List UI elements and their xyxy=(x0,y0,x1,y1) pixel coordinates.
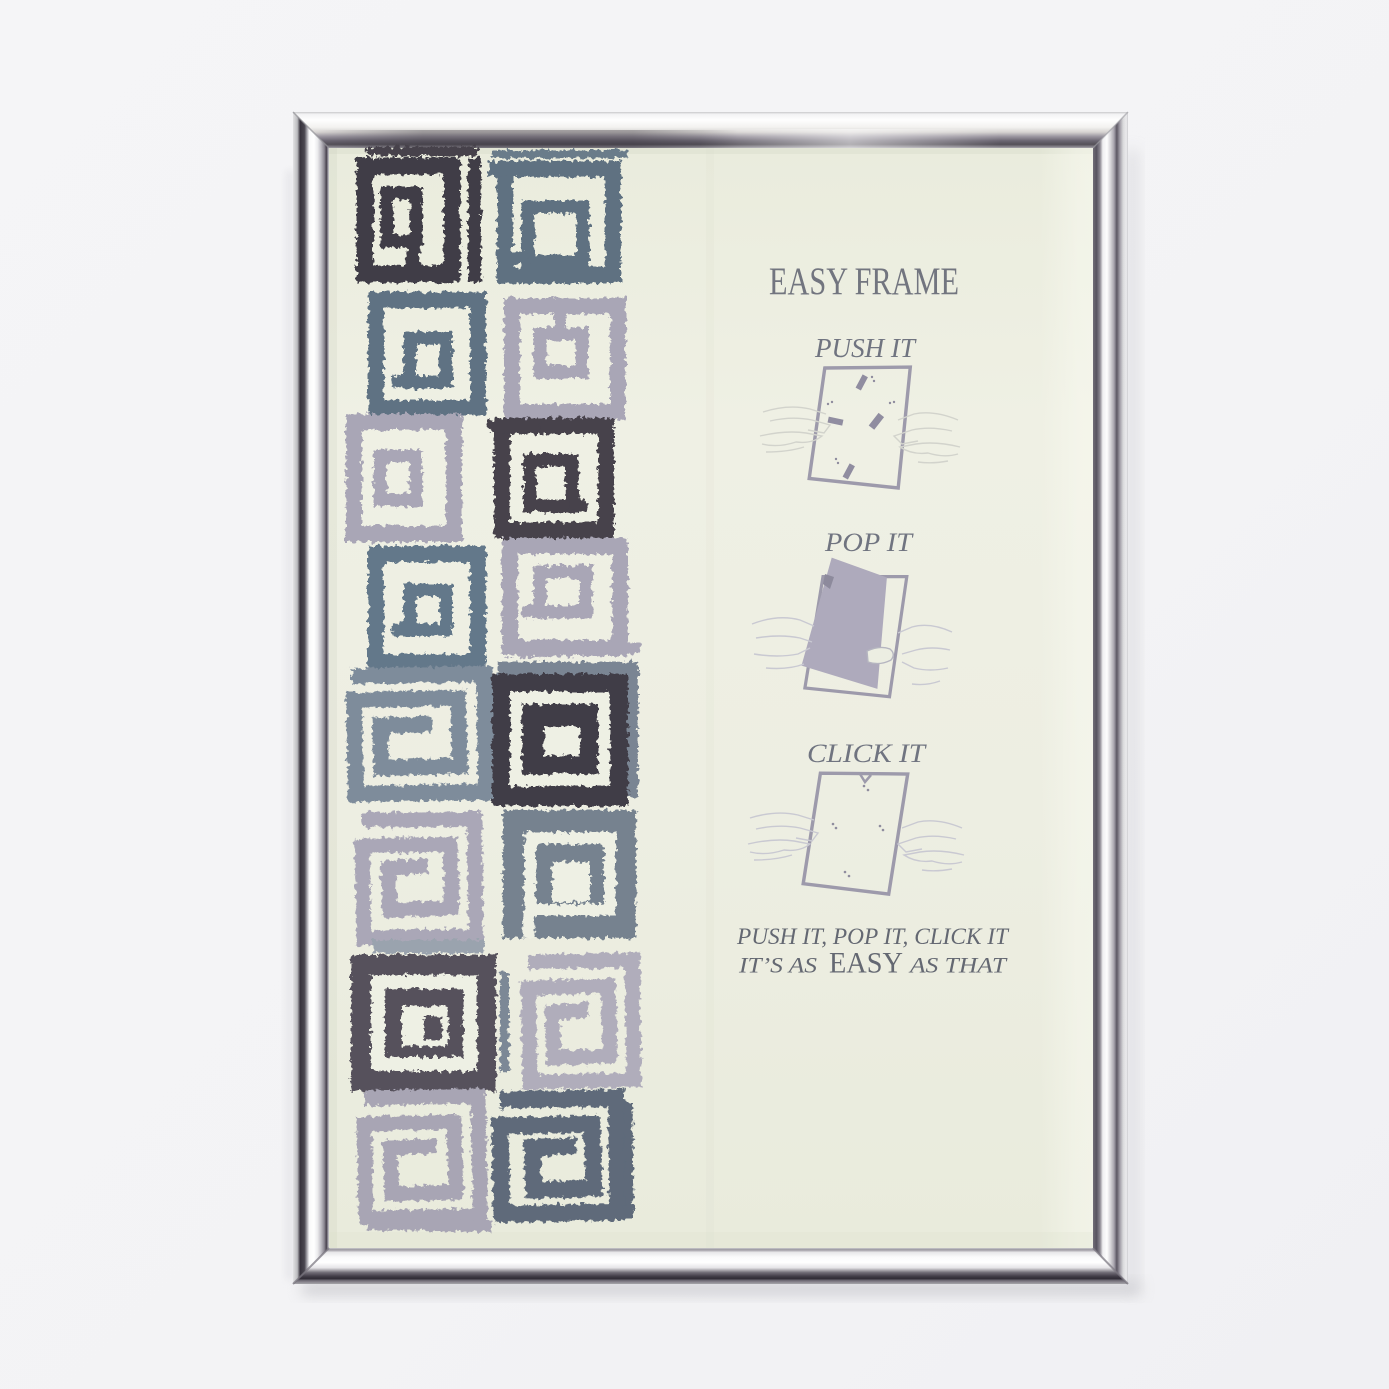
svg-text:EASY FRAME: EASY FRAME xyxy=(769,260,959,303)
svg-text:CLICK IT: CLICK IT xyxy=(807,739,927,768)
svg-text:PUSH IT: PUSH IT xyxy=(814,333,917,363)
svg-text:POP IT: POP IT xyxy=(824,528,914,557)
